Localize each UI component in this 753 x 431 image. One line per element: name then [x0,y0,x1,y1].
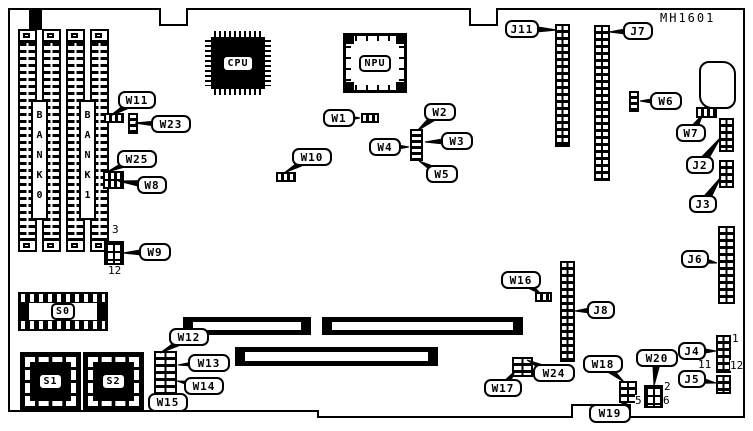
w7-jumper [696,107,717,118]
callout-j3: J3 [689,195,717,213]
w2-w5-jumper [410,129,423,161]
j6-header [718,226,735,304]
callout-j4: J4 [678,342,706,360]
w9-jumper [104,241,124,265]
callout-w19: W19 [589,404,631,423]
callout-j5: J5 [678,370,706,388]
cpu-pins-bottom [214,89,262,95]
callout-w14: W14 [184,377,224,395]
callout-w6: W6 [650,92,682,110]
callout-w12: W12 [169,328,209,346]
s2-chip: S2 [83,352,144,411]
callout-w20: W20 [636,349,678,367]
rtc-battery-blob [699,61,736,109]
w10-jumper [276,172,296,182]
board-title: MH1601 [660,11,715,25]
callout-w24: W24 [533,364,575,382]
j3-header [719,160,734,188]
callout-w23: W23 [151,115,191,133]
callout-j7: J7 [623,22,653,40]
s0-pins-bottom [21,321,105,329]
callout-w17: W17 [484,379,522,397]
w17-w24-jumper [512,357,533,377]
s2-label: S2 [101,373,125,390]
j4-header [716,335,731,373]
callout-w16: W16 [501,271,541,289]
s1-label: S1 [38,373,62,390]
callout-w7: W7 [676,124,706,142]
j5-header [716,375,731,394]
callout-w1: W1 [323,109,355,127]
j7-header [594,25,610,181]
pin-number: 12 [108,265,121,276]
callout-w11: W11 [118,91,156,109]
w16-jumper [535,292,552,302]
callout-w2: W2 [424,103,456,121]
callout-w8: W8 [137,176,167,194]
cpu-pins-right [265,40,271,86]
w20-jumper [644,385,663,408]
edge-connector-small [29,9,42,30]
callout-w10: W10 [292,148,332,166]
callout-j8: J8 [587,301,615,319]
pin-number: 6 [663,395,670,406]
w23-jumper [128,113,138,134]
callout-w13: W13 [188,354,230,372]
callout-w4: W4 [369,138,401,156]
callout-w9: W9 [139,243,171,261]
j2-header [719,118,734,152]
npu-label: NPU [359,55,390,72]
pin-number: 12 [730,360,743,371]
j8-header [560,261,575,362]
callout-w3: W3 [441,132,473,150]
s0-label: S0 [51,303,75,320]
pin-number: 2 [664,381,671,392]
cpu-label: CPU [222,55,253,72]
w25-w8-jumper [103,171,124,189]
callout-w15: W15 [148,393,188,412]
callout-w25: W25 [117,150,157,168]
simm-clip-icon [66,239,85,252]
s1-chip: S1 [20,352,81,411]
npu-socket: NPU [343,33,407,93]
bank1-label: BANK1 [79,100,96,220]
pin-number: 5 [635,395,642,406]
callout-w18: W18 [583,355,623,373]
cpu-chip: CPU [205,31,271,95]
w12-w15-jumper [154,351,177,396]
simm-clip-icon [18,239,37,252]
w1-jumper [361,113,379,123]
w11-jumper [104,113,124,123]
bank0-label: BANK0 [31,100,48,220]
pin-number: 1 [732,333,739,344]
expansion-slot-3 [235,347,438,366]
simm-clip-icon [42,239,61,252]
j11-header [555,24,570,147]
pin-number: 3 [112,224,119,235]
pin-number: 11 [698,359,711,370]
callout-j2: J2 [686,156,714,174]
w6-jumper [629,91,639,112]
callout-j11: J11 [505,20,539,38]
expansion-slot-2 [322,317,523,335]
callout-j6: J6 [681,250,709,268]
callout-w5: W5 [426,165,458,183]
s0-chip: S0 [18,292,108,331]
s0-pins-top [21,294,105,302]
motherboard-diagram: MH1601 BANK0 BANK1 CPU NPU S0 S1 S2 [0,0,753,431]
